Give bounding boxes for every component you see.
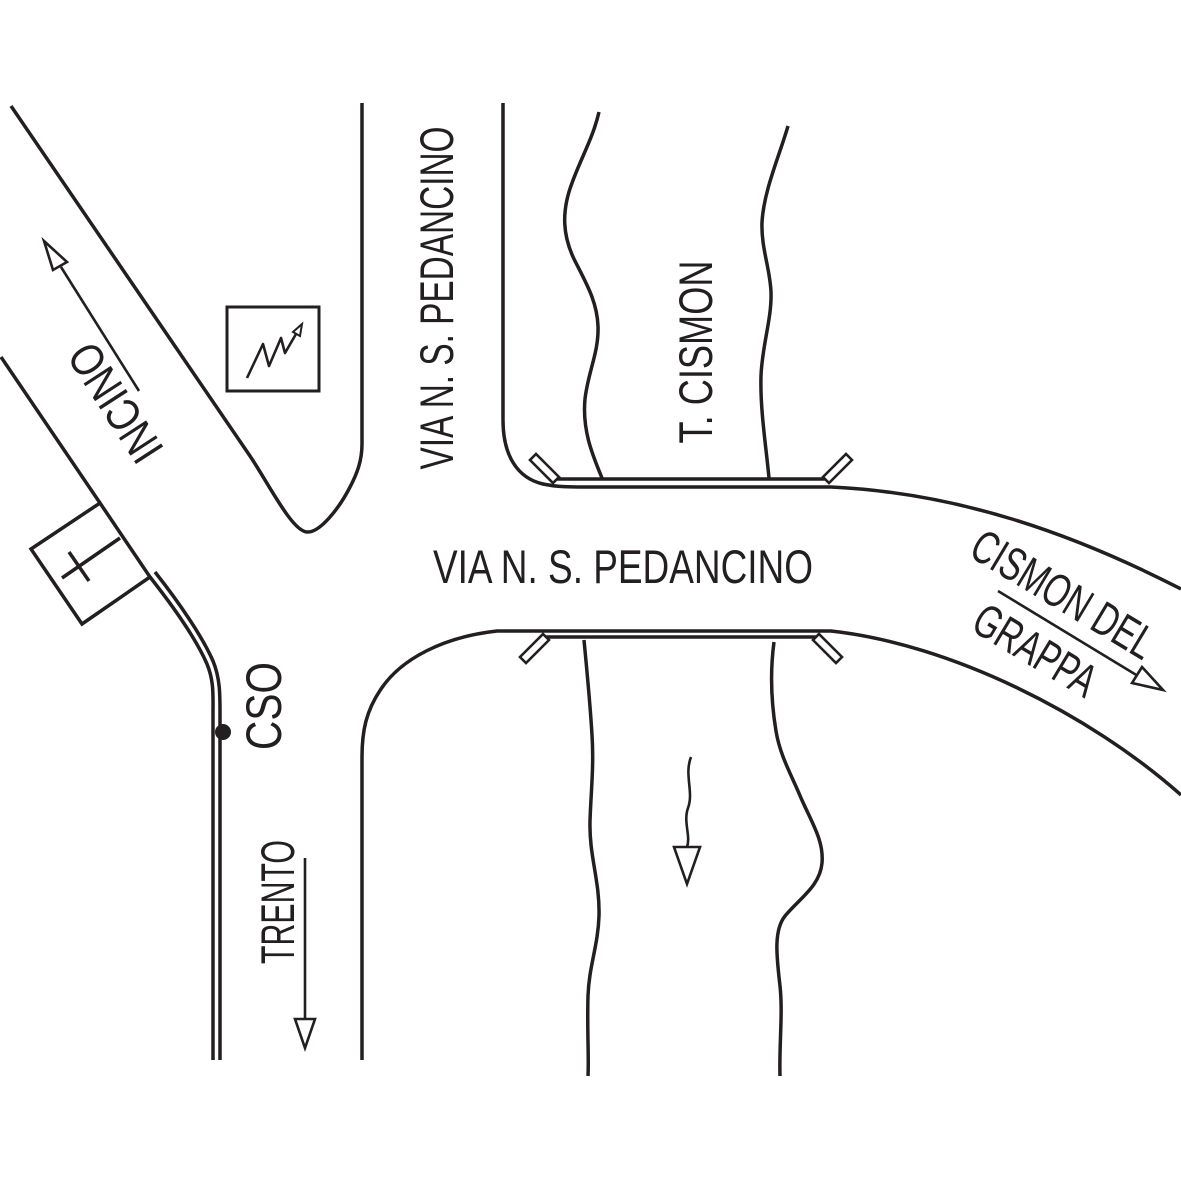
label-via-ns-pedancino-vertical: VIA N. S. PEDANCINO (410, 127, 463, 470)
river-flow-arrow-line (686, 757, 691, 847)
river-bank-north-left (565, 112, 602, 478)
map-drawing: VIA N. S. PEDANCINO VIA N. S. PEDANCINO … (0, 0, 1181, 1181)
cismon-arrowhead-icon (1132, 667, 1163, 690)
bridge-wing-northwest-icon (530, 454, 559, 483)
church-outline (31, 503, 150, 624)
bridge-wing-southeast-icon (813, 634, 842, 663)
road-edge-south-west-outer (150, 577, 213, 1060)
river-bank-south-left (584, 640, 599, 1076)
gauge-station (227, 307, 319, 391)
map-labels: VIA N. S. PEDANCINO VIA N. S. PEDANCINO … (57, 127, 1165, 965)
cso-point-marker (215, 724, 231, 740)
label-trento: TRENTO (251, 840, 304, 964)
gauge-station-box (227, 307, 319, 391)
river-bank-south-right (772, 642, 823, 1076)
bridge-wing-southwest-icon (520, 634, 549, 663)
river-flow-arrowhead-icon (674, 847, 700, 884)
river-banks (565, 112, 823, 1076)
road-edge-south-west-inner (155, 572, 220, 1060)
incino-arrowhead-icon (44, 241, 67, 270)
label-cso: CSO (236, 662, 292, 750)
bridge-wing-northeast-icon (823, 454, 852, 483)
trento-arrowhead-icon (295, 1019, 315, 1048)
river-bank-north-right (761, 126, 788, 478)
label-t-cismon: T. CISMON (669, 261, 722, 444)
road-edge-north-east-and-top (503, 103, 1181, 589)
church-building (31, 503, 150, 624)
site-location-map: VIA N. S. PEDANCINO VIA N. S. PEDANCINO … (0, 0, 1181, 1181)
label-via-ns-pedancino-horizontal: VIA N. S. PEDANCINO (433, 540, 813, 593)
